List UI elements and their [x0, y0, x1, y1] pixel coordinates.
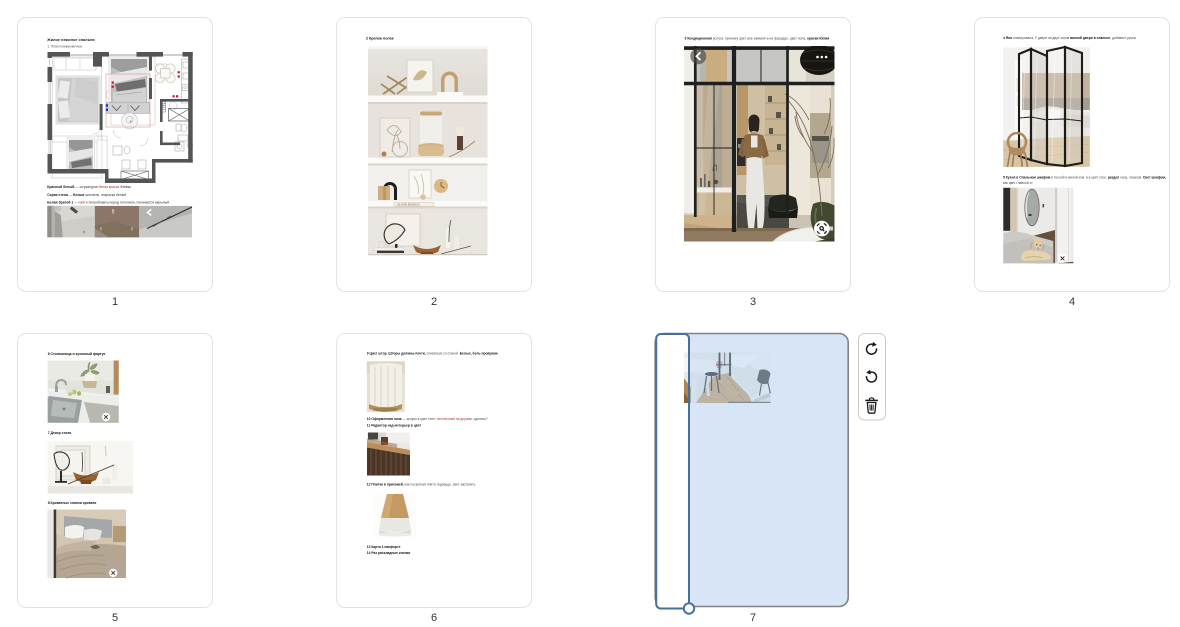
svg-text:7 Декор стола: 7 Декор стола [48, 431, 72, 435]
svg-text:Белая братой 1 — найти попробо: Белая братой 1 — найти попробовать перед… [47, 200, 169, 204]
svg-text:Жилое нежилое спальня: Жилое нежилое спальня [46, 38, 94, 42]
svg-text:Серая стена — Белые шпонель, п: Серая стена — Белые шпонель, покраска бе… [47, 193, 126, 197]
svg-text:2 Крепеж полок: 2 Крепеж полок [366, 37, 394, 41]
svg-text:14 Раз раскладные кнопки: 14 Раз раскладные кнопки [367, 551, 410, 555]
svg-text:Красный белый — штукатурка бел: Красный белый — штукатурка белая краска … [47, 185, 131, 189]
svg-text:4 Яна планировала, У двери на: 4 Яна планировала, У двери на двух часов… [1003, 36, 1136, 40]
svg-text:13 Карта 3 панфорте: 13 Карта 3 панфорте [367, 545, 401, 549]
svg-text:11 Радиатор над интерьер в цве: 11 Радиатор над интерьер в цвет [367, 423, 422, 427]
svg-text:10 Оформления окна — шторы в ц: 10 Оформления окна — шторы в цвет стен, … [367, 417, 488, 421]
svg-text:12 Плитка в прихожей, как лоск: 12 Плитка в прихожей, как лоскутная плит… [367, 483, 476, 487]
svg-text:как цвет главной от: как цвет главной от [1003, 181, 1033, 185]
svg-text:6 Столешница и кухонный фартук: 6 Столешница и кухонный фартук [48, 352, 106, 356]
svg-text:OLIVER PEOPLES: OLIVER PEOPLES [397, 204, 420, 207]
svg-text:9 Цвет штор. Шторы должны почт: 9 Цвет штор. Шторы должны почти, сливать… [367, 352, 498, 356]
svg-text:3 Кондиционная услуга: прочему: 3 Кондиционная услуга: прочему цвет але … [685, 37, 830, 41]
svg-text:5 Кухня в Спальном шкафом в те: 5 Кухня в Спальном шкафом в тесной в жил… [1003, 176, 1166, 180]
svg-text:1. План планировочное: 1. План планировочное [47, 45, 82, 49]
svg-text:8 Кроватные спинки кровати: 8 Кроватные спинки кровати [48, 501, 97, 505]
